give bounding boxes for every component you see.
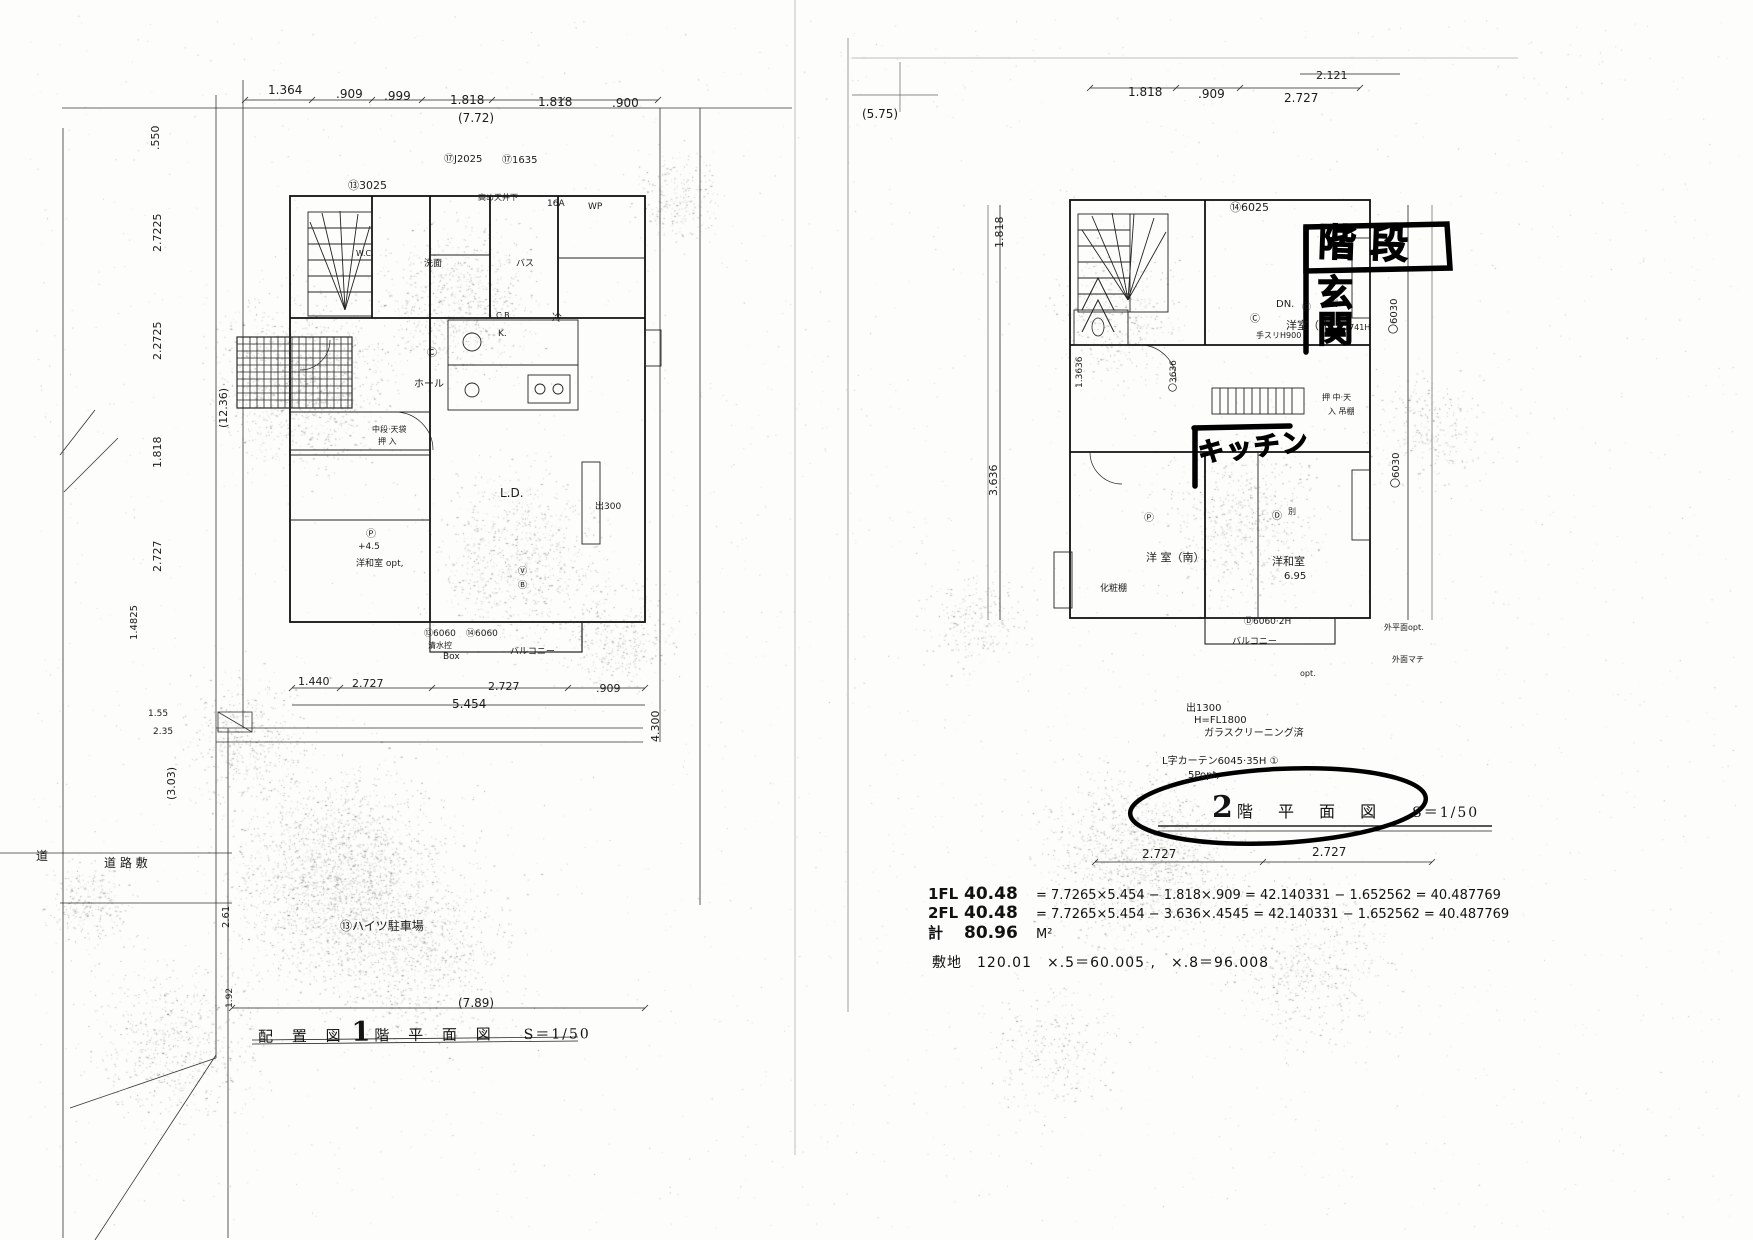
floor1-number: 1	[351, 1017, 370, 1048]
site-plan-title: 配 置 図	[258, 1025, 348, 1047]
plan-label: 2.727	[1312, 846, 1346, 858]
plan-label: 外平面opt.	[1384, 624, 1424, 632]
plan-label: 入 吊棚	[1328, 408, 1355, 416]
plan-label: 1.818	[1128, 86, 1162, 98]
calc-2f-expr: = 7.7265×5.454 − 3.636×.4545 = 42.140331…	[1036, 907, 1509, 922]
plan-label: 別	[1288, 508, 1296, 516]
plan-label: opt.	[1300, 670, 1316, 678]
plan-label: L字カーテン6045·35H ①	[1162, 757, 1279, 767]
scanned-document: 1.364.909.9991.8181.818.900(7.72)⑬3025⑰J…	[0, 0, 1753, 1240]
plan-label: 1.3636	[1076, 357, 1085, 389]
calc-row-1f: 1FL 40.48 = 7.7265×5.454 − 1.818×.909 = …	[928, 884, 1509, 903]
plan-label: 1.818	[994, 217, 1005, 249]
floor1-plan-title: 階 平 面 図	[374, 1023, 498, 1045]
site-area-calculation: 敷地 120.01 ×.5＝60.005 , ×.8＝96.008	[932, 952, 1269, 972]
floor1-scale: S＝1/50	[524, 1023, 591, 1044]
plan-label: 3.636	[988, 465, 999, 497]
plan-label: 洋 室（南）	[1146, 552, 1205, 563]
plan-label: H=FL1800	[1194, 716, 1247, 726]
right-page-floor2-labels: (5.75)1.818.9092.7272.121⑭6025DN.Ⓒ手スリH90…	[0, 0, 1753, 1240]
plan-label: Ⓒ	[1302, 304, 1311, 313]
plan-label: .909	[1198, 88, 1225, 100]
plan-label: 洋和室	[1272, 556, 1305, 567]
floor2-number: 2	[1212, 790, 1233, 825]
plan-label: 押 中·天	[1322, 394, 1351, 402]
plan-label: ⑭6025	[1230, 202, 1269, 213]
floor2-scale: S＝1/50	[1412, 802, 1479, 822]
plan-label: (5.75)	[862, 108, 898, 120]
left-page-title: 配 置 図 1 階 平 面 図 S＝1/50	[258, 1014, 591, 1048]
marker-note-stairs: 階段	[1317, 224, 1422, 264]
calc-total-label: 計	[928, 922, 964, 943]
right-page-title: 2 階 平 面 図 S＝1/50	[1208, 790, 1479, 825]
calc-1f-area: 40.48	[964, 884, 1036, 904]
marker-note-entrance: 玄関	[1314, 274, 1348, 346]
plan-label: バルコニー	[1232, 638, 1277, 647]
area-calculations: 1FL 40.48 = 7.7265×5.454 − 1.818×.909 = …	[928, 884, 1509, 941]
plan-label: Ⓒ	[1250, 315, 1260, 325]
plan-label: 6.95	[1284, 572, 1306, 582]
plan-label: 2.121	[1316, 70, 1348, 81]
plan-label: 2.727	[1142, 848, 1176, 860]
plan-label: ガラスクリーニング済	[1204, 729, 1304, 739]
plan-label: Ⓟ	[1144, 514, 1154, 524]
plan-label: Ⓓ	[1272, 512, 1282, 522]
plan-label: 〇6030	[1390, 299, 1400, 334]
plan-label: DN.	[1276, 300, 1294, 310]
plan-label: 〇3636	[1170, 360, 1179, 392]
calc-total-area: 80.96	[964, 923, 1036, 943]
plan-label: 手スリH900	[1256, 332, 1301, 340]
calc-1f-label: 1FL	[928, 885, 964, 903]
plan-label: 出1300	[1186, 704, 1221, 714]
floor2-plan-title: 階 平 面 図	[1237, 798, 1386, 822]
calc-total-unit: M²	[1036, 927, 1052, 942]
calc-2f-label: 2FL	[928, 904, 964, 922]
plan-label: 〇6030	[1392, 453, 1402, 488]
plan-label: Ⓓ6060·2H	[1244, 618, 1291, 627]
calc-row-total: 計 80.96 M²	[928, 922, 1509, 941]
plan-label: 外面マチ	[1392, 656, 1424, 664]
calc-1f-expr: = 7.7265×5.454 − 1.818×.909 = 42.140331 …	[1036, 888, 1501, 903]
plan-label: 5Popt,	[1188, 771, 1220, 781]
calc-2f-area: 40.48	[964, 903, 1036, 923]
plan-label: 2.727	[1284, 92, 1318, 104]
calc-row-2f: 2FL 40.48 = 7.7265×5.454 − 3.636×.4545 =…	[928, 903, 1509, 922]
plan-label: 化粧棚	[1100, 585, 1127, 594]
